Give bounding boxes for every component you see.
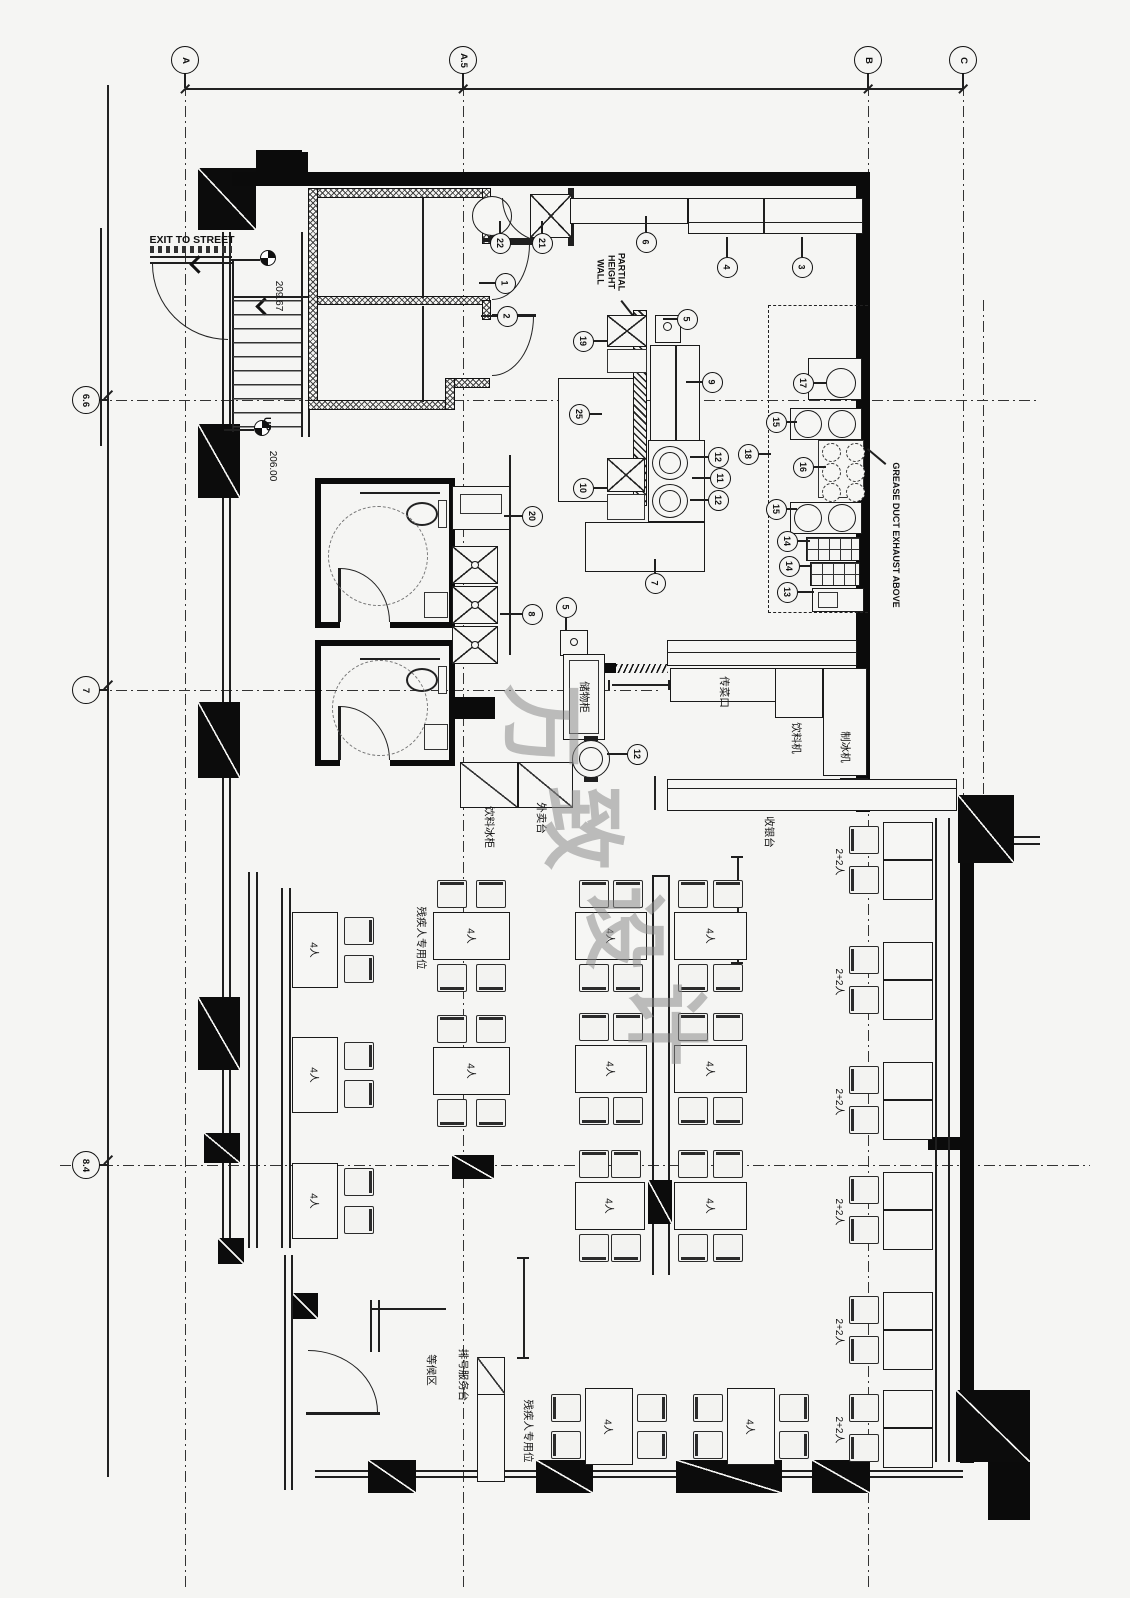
chair-back — [614, 1257, 638, 1260]
room-label: 饮料冰柜 — [483, 806, 495, 848]
burner — [828, 410, 856, 438]
table-seat-label: 4人 — [464, 928, 479, 944]
chair — [849, 826, 879, 854]
booth-table — [883, 942, 933, 980]
chair-back — [716, 1152, 740, 1155]
chair-back — [553, 1434, 556, 1456]
callout-8: 8 — [522, 604, 543, 625]
under-counter-inner — [818, 592, 838, 608]
canopy-line — [100, 228, 102, 446]
annotation: PARTIAL HEIGHT WALL — [595, 253, 626, 291]
window-sill — [1014, 836, 1040, 838]
room-divider — [422, 198, 424, 298]
sink-drainboard — [607, 494, 645, 520]
grid-bubble-8.4: 8.4 — [72, 1151, 100, 1179]
restroom-wall — [315, 478, 455, 484]
chair — [678, 880, 708, 908]
chair-back — [479, 1017, 503, 1020]
annotation: 206.00 — [266, 451, 278, 482]
callout-11: 11 — [710, 468, 731, 489]
column — [198, 997, 240, 1070]
column — [648, 1180, 672, 1224]
fryer — [810, 562, 860, 586]
burner — [846, 483, 865, 502]
dim-tick — [731, 856, 743, 858]
chair-back — [614, 1152, 638, 1155]
hatched-wall — [308, 296, 490, 305]
callout-5: 5 — [677, 309, 698, 330]
dim-tick — [517, 1357, 529, 1359]
callout-leader — [686, 381, 702, 383]
drain — [471, 641, 479, 649]
floor-sink-ring — [579, 747, 603, 771]
chair — [849, 986, 879, 1014]
callout-12: 12 — [708, 447, 729, 468]
chair-back — [716, 1015, 740, 1018]
fryer — [806, 537, 860, 561]
chair — [849, 1336, 879, 1364]
callout-leader — [645, 216, 647, 232]
chair-back — [695, 1434, 698, 1456]
chair-back — [681, 1120, 705, 1123]
sink-drainboard — [607, 349, 647, 373]
callout-leader — [692, 477, 710, 479]
chair-back — [681, 1152, 705, 1155]
dim-tick — [668, 680, 670, 690]
table-seat-label: 4人 — [703, 1198, 718, 1214]
beverage-fridge — [460, 762, 518, 808]
hatched-wall — [445, 378, 455, 410]
dining-table: 4人 — [292, 1163, 338, 1239]
chair-back — [851, 1179, 854, 1201]
chair — [678, 1234, 708, 1262]
callout-leader — [541, 221, 543, 233]
chair-back — [851, 989, 854, 1011]
callout-leader — [787, 421, 797, 423]
chair-back — [851, 949, 854, 971]
chair-back — [440, 1017, 464, 1020]
booth-seat-label: 2+2人 — [832, 849, 844, 876]
dining-table: 4人 — [674, 912, 747, 960]
room-label: 外卖台 — [535, 802, 547, 834]
chair — [849, 1296, 879, 1324]
room-label: 饮料机 — [790, 722, 802, 754]
callout-leader — [787, 508, 797, 510]
annotation: EXIT TO STREET — [150, 234, 235, 246]
table-seat-label: 4人 — [744, 1419, 759, 1435]
booth-table — [883, 1292, 933, 1330]
chair — [344, 1080, 374, 1108]
column — [958, 795, 1014, 863]
stair-rail — [301, 232, 303, 437]
table-seat-label: 4人 — [308, 1067, 323, 1083]
column — [204, 1133, 240, 1163]
chair — [637, 1431, 667, 1459]
room-label: 收银台 — [763, 816, 775, 848]
chair-back — [851, 1219, 854, 1241]
column — [292, 1293, 318, 1319]
chair-back — [553, 1397, 556, 1419]
callout-leader — [500, 613, 522, 615]
chair-back — [616, 1015, 640, 1018]
room-label: 制冰机 — [839, 731, 851, 763]
chair-back — [479, 987, 503, 990]
hand-sink — [424, 592, 448, 618]
chair-back — [369, 1209, 372, 1231]
callout-15: 15 — [766, 412, 787, 433]
grid-bubble-A.5: A.5 — [449, 46, 477, 74]
chair-back — [851, 1069, 854, 1091]
chair — [849, 1066, 879, 1094]
chair — [437, 880, 467, 908]
chair — [579, 880, 609, 908]
chair — [579, 1234, 609, 1262]
booth-seat-label: 2+2人 — [832, 969, 844, 996]
chair-back — [582, 1015, 606, 1018]
window-line — [284, 1255, 286, 1490]
bench-line — [256, 872, 258, 1248]
hatched-wall — [308, 400, 455, 410]
bench-line — [935, 818, 937, 1462]
callout-leader — [479, 282, 495, 284]
callout-3: 3 — [792, 257, 813, 278]
chair — [678, 1013, 708, 1041]
counter-divider — [763, 198, 765, 234]
chair — [611, 1150, 641, 1178]
lease-line — [983, 300, 984, 806]
restroom-wall — [315, 622, 340, 628]
stair-treads — [233, 300, 301, 428]
grid-bubble-B: B — [854, 46, 882, 74]
callout-leader — [481, 315, 497, 317]
callout-14: 14 — [779, 556, 800, 577]
chair — [779, 1394, 809, 1422]
dining-table: 4人 — [292, 1037, 338, 1113]
chair — [678, 964, 708, 992]
wall — [988, 1462, 1030, 1520]
chair — [476, 1099, 506, 1127]
chair-back — [851, 869, 854, 891]
bench-line — [281, 888, 283, 1248]
stair-landing — [233, 296, 308, 298]
callout-leader — [663, 318, 677, 320]
callout-leader — [759, 453, 771, 455]
table-seat-label: 4人 — [703, 928, 718, 944]
chair — [344, 917, 374, 945]
chair-back — [695, 1397, 698, 1419]
leader-line — [230, 259, 260, 261]
callout-16: 16 — [793, 457, 814, 478]
partition-line — [509, 455, 511, 655]
chair — [344, 1168, 374, 1196]
window-line — [291, 1255, 293, 1490]
chair — [344, 1206, 374, 1234]
chair — [551, 1394, 581, 1422]
dining-table: 4人 — [585, 1388, 633, 1465]
grid-bubble-A: A — [171, 46, 199, 74]
beverage-machine — [775, 668, 823, 718]
callout-leader — [800, 565, 812, 567]
room-label: 储物柜 — [578, 681, 590, 713]
table-seat-label: 4人 — [602, 1419, 617, 1435]
chair — [693, 1394, 723, 1422]
window-sill — [1014, 843, 1040, 845]
table-seat-label: 4人 — [604, 1061, 619, 1077]
booth-table — [883, 860, 933, 900]
chair — [678, 1097, 708, 1125]
chair-back — [681, 1257, 705, 1260]
burner — [822, 443, 841, 462]
chair-back — [681, 882, 705, 885]
dining-table: 4人 — [674, 1045, 747, 1093]
toilet-tank — [438, 500, 447, 528]
callout-19: 19 — [573, 331, 594, 352]
top-dimension-line — [185, 88, 963, 90]
drain — [471, 601, 479, 609]
chair — [613, 1013, 643, 1041]
chair-back — [440, 882, 464, 885]
wall-line — [150, 256, 232, 258]
column — [368, 1460, 416, 1493]
counter — [688, 198, 863, 234]
chair — [476, 880, 506, 908]
table-seat-label: 4人 — [604, 928, 619, 944]
burner — [846, 443, 865, 462]
chair — [476, 1015, 506, 1043]
callout-leader — [594, 340, 608, 342]
table-seat-label: 4人 — [603, 1198, 618, 1214]
burner — [794, 410, 822, 438]
chair — [849, 1106, 879, 1134]
callout-22: 22 — [490, 233, 511, 254]
wall — [232, 172, 870, 186]
dining-table: 4人 — [727, 1388, 775, 1465]
booth-table — [883, 1390, 933, 1428]
chair — [344, 955, 374, 983]
dining-table: 4人 — [575, 1182, 645, 1230]
dining-table: 4人 — [292, 912, 338, 988]
tab — [584, 777, 598, 782]
cashier-counter — [667, 779, 957, 811]
chair-back — [582, 1152, 606, 1155]
chair-back — [681, 1015, 705, 1018]
booth-table — [883, 980, 933, 1020]
chair — [476, 964, 506, 992]
chair-back — [681, 987, 705, 990]
dining-table: 4人 — [575, 1045, 647, 1093]
callout-4: 4 — [717, 257, 738, 278]
chair-back — [851, 1437, 854, 1459]
grid-bubble-7: 7 — [72, 676, 100, 704]
callout-leader — [726, 237, 728, 257]
dining-table: 4人 — [674, 1182, 747, 1230]
chair — [713, 1234, 743, 1262]
callout-leader — [590, 413, 602, 415]
hand-sink — [424, 724, 448, 750]
dining-table: 4人 — [433, 1047, 510, 1095]
dim-line — [523, 1258, 525, 1358]
chair-back — [369, 1171, 372, 1193]
chair-back — [582, 1120, 606, 1123]
chair — [613, 1097, 643, 1125]
prep-sink — [607, 458, 645, 492]
chair — [849, 1176, 879, 1204]
chair — [579, 1150, 609, 1178]
chair — [437, 1099, 467, 1127]
drain — [471, 561, 479, 569]
restroom-wall — [315, 640, 321, 766]
chair — [713, 880, 743, 908]
booth-table — [883, 1428, 933, 1468]
booth-table — [883, 1330, 933, 1370]
chair — [849, 1216, 879, 1244]
chair — [611, 1234, 641, 1262]
room-label: 残疾人专用位 — [415, 907, 427, 970]
callout-leader — [690, 456, 708, 458]
floor-plan: AA.5BC6.678.44人4人4人4人4人4人4人4人4人4人4人4人4人2… — [0, 0, 1130, 1598]
dim-line — [654, 776, 656, 810]
callout-12: 12 — [708, 490, 729, 511]
tab — [584, 736, 598, 741]
chair — [613, 964, 643, 992]
grab-bar — [360, 492, 440, 494]
restroom-wall — [390, 760, 455, 766]
column — [956, 1390, 1030, 1462]
restroom-wall — [315, 478, 321, 628]
counter-line — [688, 222, 863, 223]
chair — [779, 1431, 809, 1459]
chair — [437, 1015, 467, 1043]
chair-back — [851, 1339, 854, 1361]
chair-back — [582, 1257, 606, 1260]
restroom-wall — [315, 640, 455, 646]
roll-shutter — [616, 664, 668, 673]
service-desk-top — [477, 1357, 505, 1395]
callout-9: 9 — [702, 372, 723, 393]
annotation: UP — [260, 417, 272, 431]
callout-25: 25 — [569, 404, 590, 425]
callout-leader — [798, 591, 814, 593]
chair-back — [440, 987, 464, 990]
rice-cooker-pot — [826, 368, 856, 398]
burner — [794, 504, 822, 532]
chair-back — [851, 829, 854, 851]
callout-leader — [565, 618, 567, 630]
callout-18: 18 — [738, 444, 759, 465]
callout-leader — [654, 559, 656, 573]
grid-bubble-C: C — [949, 46, 977, 74]
chair-back — [369, 1083, 372, 1105]
dim-tick — [608, 680, 610, 690]
shelf-counter — [570, 198, 688, 224]
grid-bubble-6.6: 6.6 — [72, 386, 100, 414]
chair — [849, 866, 879, 894]
booth-table — [883, 1100, 933, 1140]
column — [218, 1238, 244, 1264]
leader-line — [224, 429, 254, 431]
dining-table: 4人 — [575, 912, 647, 960]
burner — [828, 504, 856, 532]
wheelchair-turning-circle — [328, 506, 428, 606]
chair — [579, 964, 609, 992]
burner — [822, 483, 841, 502]
chair-back — [716, 987, 740, 990]
callout-6: 6 — [636, 232, 657, 253]
restroom-wall — [390, 622, 455, 628]
callout-leader — [814, 466, 826, 468]
room-label: 传菜口 — [718, 676, 730, 708]
chair-back — [716, 882, 740, 885]
chair-back — [716, 1120, 740, 1123]
wall — [960, 863, 974, 1463]
callout-10: 10 — [573, 478, 594, 499]
grid-line-C — [963, 85, 964, 805]
chair-back — [616, 1120, 640, 1123]
chair-back — [804, 1397, 807, 1419]
chair — [637, 1394, 667, 1422]
table-seat-label: 4人 — [308, 1193, 323, 1209]
chair-back — [662, 1434, 665, 1456]
dim-line — [612, 684, 670, 686]
cabinet-inner — [460, 494, 502, 514]
takeout-counter — [518, 762, 573, 808]
chair — [344, 1042, 374, 1070]
callout-leader — [607, 753, 627, 755]
hatched-wall — [308, 188, 318, 410]
column — [452, 1155, 494, 1179]
chair — [579, 1097, 609, 1125]
counter-line — [667, 652, 857, 653]
toilet-tank — [438, 666, 447, 694]
callout-leader — [801, 237, 803, 257]
chair-back — [479, 882, 503, 885]
dining-table: 4人 — [433, 912, 510, 960]
chair-back — [479, 1122, 503, 1125]
booth-seat-label: 2+2人 — [832, 1417, 844, 1444]
callout-20: 20 — [522, 506, 543, 527]
booth-seat-label: 2+2人 — [832, 1089, 844, 1116]
booth-table — [883, 1172, 933, 1210]
dim-tick — [517, 1257, 529, 1259]
table-seat-label: 4人 — [308, 942, 323, 958]
chair — [849, 1434, 879, 1462]
table-seat-label: 4人 — [703, 1061, 718, 1077]
callout-21: 21 — [532, 233, 553, 254]
chair-back — [851, 1397, 854, 1419]
hatched-wall — [482, 300, 491, 320]
booth-table — [883, 1210, 933, 1250]
bench-line — [248, 872, 250, 1248]
chair-back — [804, 1434, 807, 1456]
chair — [713, 1097, 743, 1125]
plumbing-chase — [451, 697, 495, 719]
chair-back — [662, 1397, 665, 1419]
callout-15: 15 — [766, 499, 787, 520]
column — [812, 1460, 870, 1493]
callout-leader — [690, 499, 708, 501]
counter-line — [667, 788, 957, 789]
booth-table — [883, 822, 933, 860]
faucet — [570, 638, 578, 646]
chair-back — [851, 1299, 854, 1321]
threshold — [150, 246, 232, 253]
chair — [437, 964, 467, 992]
callout-2: 2 — [497, 306, 518, 327]
room-label: 排号服务台 — [457, 1349, 469, 1402]
chair-back — [716, 1257, 740, 1260]
column — [198, 424, 240, 498]
callout-leader — [814, 382, 826, 384]
